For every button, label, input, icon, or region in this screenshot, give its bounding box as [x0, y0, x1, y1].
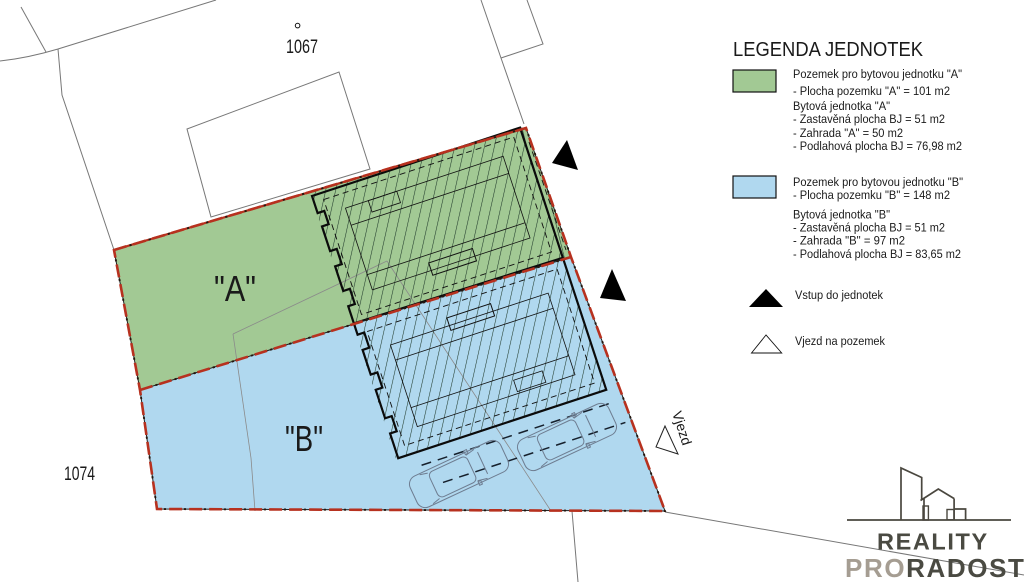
svg-text:REALITY: REALITY [877, 529, 989, 555]
svg-text:Bytová jednotka "B": Bytová jednotka "B" [793, 208, 890, 222]
svg-text:- Zahrada "B" = 97 m2: - Zahrada "B" = 97 m2 [793, 234, 905, 248]
svg-text:- Zastavěná plocha BJ = 51 m2: - Zastavěná plocha BJ = 51 m2 [793, 112, 945, 126]
svg-text:- Plocha pozemku "A" = 101 m2: - Plocha pozemku "A" = 101 m2 [793, 84, 950, 98]
svg-text:1074: 1074 [64, 464, 95, 485]
svg-text:- Zahrada "A" = 50 m2: - Zahrada "A" = 50 m2 [793, 126, 903, 140]
svg-text:Pozemek pro bytovou jednotku ": Pozemek pro bytovou jednotku "A" [793, 67, 962, 81]
svg-text:Vstup do jednotek: Vstup do jednotek [795, 288, 884, 302]
svg-text:- Podlahová plocha BJ = 76,98: - Podlahová plocha BJ = 76,98 m2 [793, 139, 962, 153]
svg-text:PRORADOST: PRORADOST [845, 553, 1024, 582]
svg-text:- Zastavěná plocha BJ = 51 m2: - Zastavěná plocha BJ = 51 m2 [793, 221, 945, 235]
svg-text:- Plocha pozemku "B" = 148 m2: - Plocha pozemku "B" = 148 m2 [793, 188, 950, 202]
svg-text:1067: 1067 [286, 37, 318, 58]
svg-text:Bytová jednotka "A": Bytová jednotka "A" [793, 99, 890, 113]
svg-text:Vjezd na pozemek: Vjezd na pozemek [795, 334, 886, 348]
svg-text:LEGENDA JEDNOTEK: LEGENDA JEDNOTEK [733, 39, 924, 61]
svg-text:- Podlahová plocha BJ = 83,65: - Podlahová plocha BJ = 83,65 m2 [793, 247, 961, 261]
svg-text:Pozemek pro bytovou jednotku ": Pozemek pro bytovou jednotku "B" [793, 175, 963, 189]
svg-text:"B": "B" [285, 418, 323, 459]
svg-text:"A": "A" [214, 268, 256, 309]
